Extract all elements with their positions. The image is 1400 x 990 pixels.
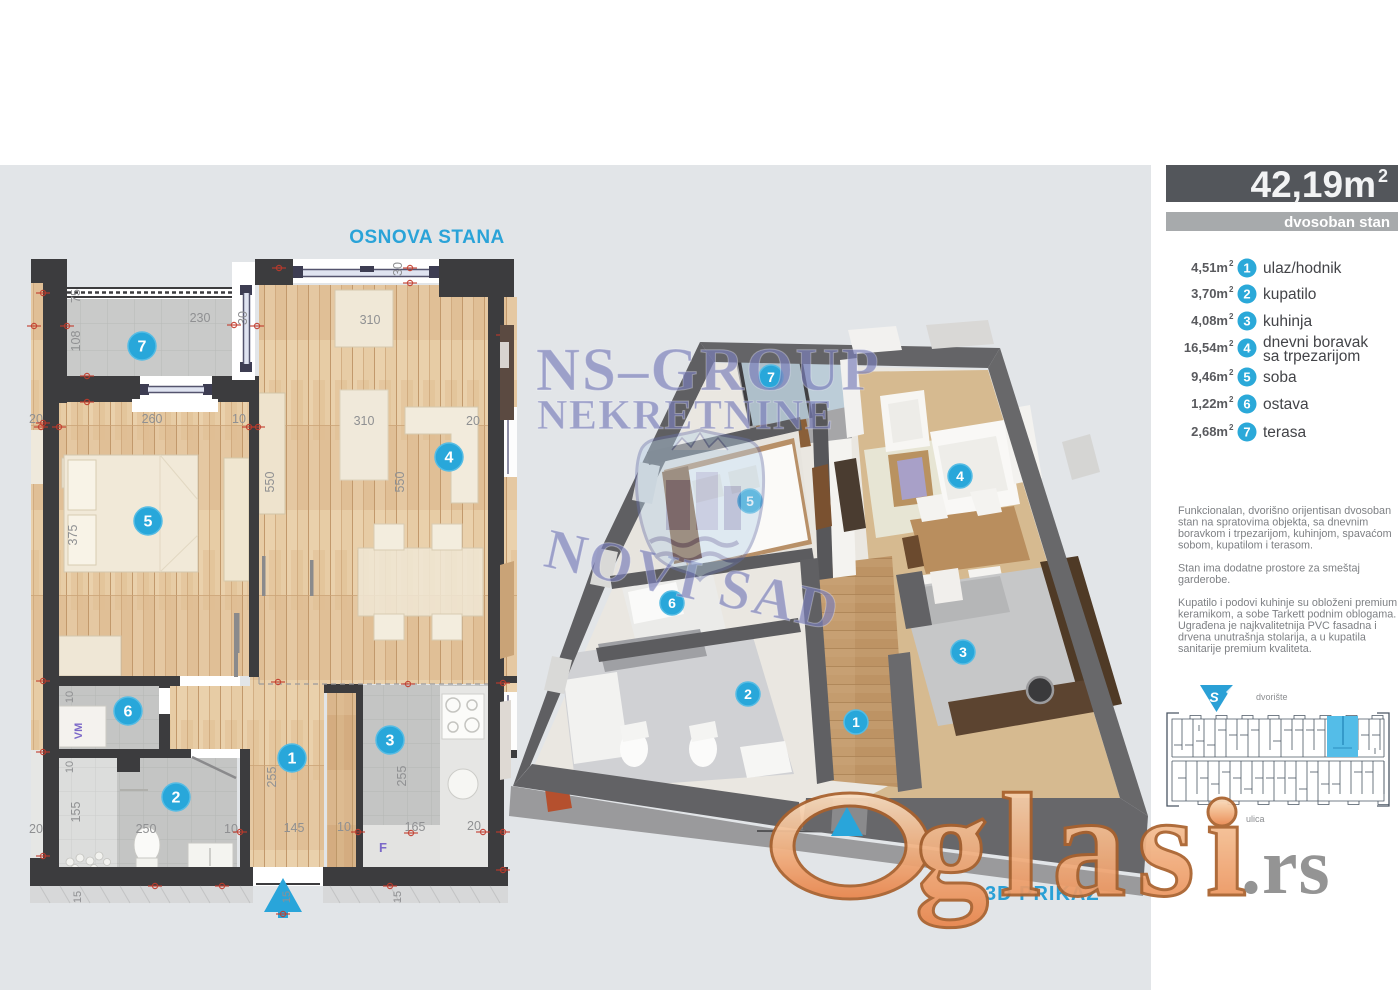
svg-text:sobom, kupatilom i terasom.: sobom, kupatilom i terasom. [1178,540,1313,552]
svg-text:5: 5 [144,514,153,531]
svg-text:terasa: terasa [1263,424,1306,441]
svg-text:4: 4 [445,450,454,467]
svg-text:2: 2 [1229,312,1234,321]
svg-text:7: 7 [1243,425,1250,440]
svg-text:2: 2 [1229,259,1234,268]
svg-text:2: 2 [1243,287,1250,302]
svg-text:250: 250 [136,822,157,836]
svg-text:255: 255 [265,767,279,788]
svg-text:10: 10 [337,820,351,834]
svg-text:310: 310 [354,414,375,428]
svg-text:Stan ima dodatne prostore za s: Stan ima dodatne prostore za smeštaj [1178,563,1360,575]
svg-text:kupatilo: kupatilo [1263,286,1316,303]
svg-text:2: 2 [1229,395,1234,404]
svg-text:2: 2 [1229,285,1234,294]
svg-text:230: 230 [190,311,211,325]
svg-text:108: 108 [69,331,83,352]
svg-text:boravkom i trpezarijom, kuhinj: boravkom i trpezarijom, kuhinjom, spavać… [1178,528,1392,540]
svg-text:30: 30 [236,311,250,325]
svg-text:kuhinja: kuhinja [1263,313,1312,330]
svg-text:145: 145 [284,821,305,835]
svg-text:3,70m: 3,70m [1191,286,1228,301]
svg-text:550: 550 [263,472,277,493]
svg-text:1: 1 [1243,261,1250,276]
svg-text:stan na spratovima objekta, sa: stan na spratovima objekta, sa dnevnim [1178,517,1368,529]
svg-text:16,54m: 16,54m [1184,340,1228,355]
svg-text:15: 15 [392,891,404,903]
svg-text:6: 6 [1243,397,1250,412]
svg-text:20: 20 [467,819,481,833]
svg-text:drvena unutrašnja stolarija, a: drvena unutrašnja stolarija, a u kupatil… [1178,632,1366,644]
svg-text:10: 10 [64,691,76,703]
svg-text:VM: VM [73,723,85,740]
svg-text:F: F [379,840,387,855]
svg-text:42,19m: 42,19m [1251,164,1377,205]
svg-text:2: 2 [1229,339,1234,348]
svg-text:260: 260 [142,412,163,426]
svg-text:dvosoban stan: dvosoban stan [1284,214,1390,231]
svg-text:glası: glası [915,764,1258,928]
svg-text:15: 15 [72,891,84,903]
svg-text:soba: soba [1263,369,1297,386]
svg-text:dvorište: dvorište [1256,692,1288,702]
svg-text:9,46m: 9,46m [1191,369,1228,384]
svg-text:255: 255 [395,766,409,787]
svg-text:4: 4 [956,468,964,484]
svg-text:15: 15 [281,891,293,903]
svg-text:310: 310 [360,313,381,327]
svg-text:10: 10 [224,822,238,836]
svg-text:ostava: ostava [1263,396,1309,413]
svg-text:.rs: .rs [1241,823,1331,911]
svg-text:20: 20 [29,822,43,836]
svg-text:Ugrađena je najkvalitetnija PV: Ugrađena je najkvalitetnija PVC fasadna … [1178,620,1377,632]
svg-text:2: 2 [744,686,752,702]
svg-text:2: 2 [1229,368,1234,377]
svg-text:155: 155 [69,802,83,823]
svg-text:ulaz/hodnik: ulaz/hodnik [1263,260,1342,277]
svg-text:1,22m: 1,22m [1191,396,1228,411]
svg-text:7: 7 [138,339,147,356]
svg-text:10: 10 [64,761,76,773]
svg-text:3: 3 [959,644,967,660]
svg-text:sanitarije premium kvaliteta.: sanitarije premium kvaliteta. [1178,643,1312,655]
svg-text:10: 10 [232,412,246,426]
svg-text:2: 2 [1378,166,1388,186]
svg-text:2: 2 [1229,423,1234,432]
svg-text:2,68m: 2,68m [1191,424,1228,439]
svg-text:1: 1 [288,751,297,768]
svg-text:30: 30 [391,262,405,276]
svg-text:sa trpezarijom: sa trpezarijom [1263,348,1360,365]
svg-text:2: 2 [172,790,181,807]
svg-text:1: 1 [852,714,860,730]
svg-text:3: 3 [386,733,395,750]
svg-text:4,08m: 4,08m [1191,313,1228,328]
svg-text:4,51m: 4,51m [1191,260,1228,275]
svg-text:4: 4 [1243,341,1251,356]
svg-text:5: 5 [1243,370,1250,385]
svg-text:3: 3 [1243,314,1250,329]
svg-text:20: 20 [466,414,480,428]
svg-text:S: S [1209,689,1219,705]
svg-text:75: 75 [69,289,83,303]
svg-text:165: 165 [405,820,426,834]
svg-text:Funkcionalan, dvorišno orijent: Funkcionalan, dvorišno orijentisan dvoso… [1178,505,1391,517]
svg-text:6: 6 [124,704,133,721]
svg-text:OSNOVA STANA: OSNOVA STANA [349,227,505,248]
svg-text:garderobe.: garderobe. [1178,574,1230,586]
svg-text:550: 550 [393,472,407,493]
svg-text:keramikom, a sobe Tarkett podn: keramikom, a sobe Tarkett podnim oblogam… [1178,609,1396,621]
svg-text:375: 375 [66,525,80,546]
svg-text:Kupatilo i podovi kuhinje su o: Kupatilo i podovi kuhinje su obloženi pr… [1178,597,1397,609]
